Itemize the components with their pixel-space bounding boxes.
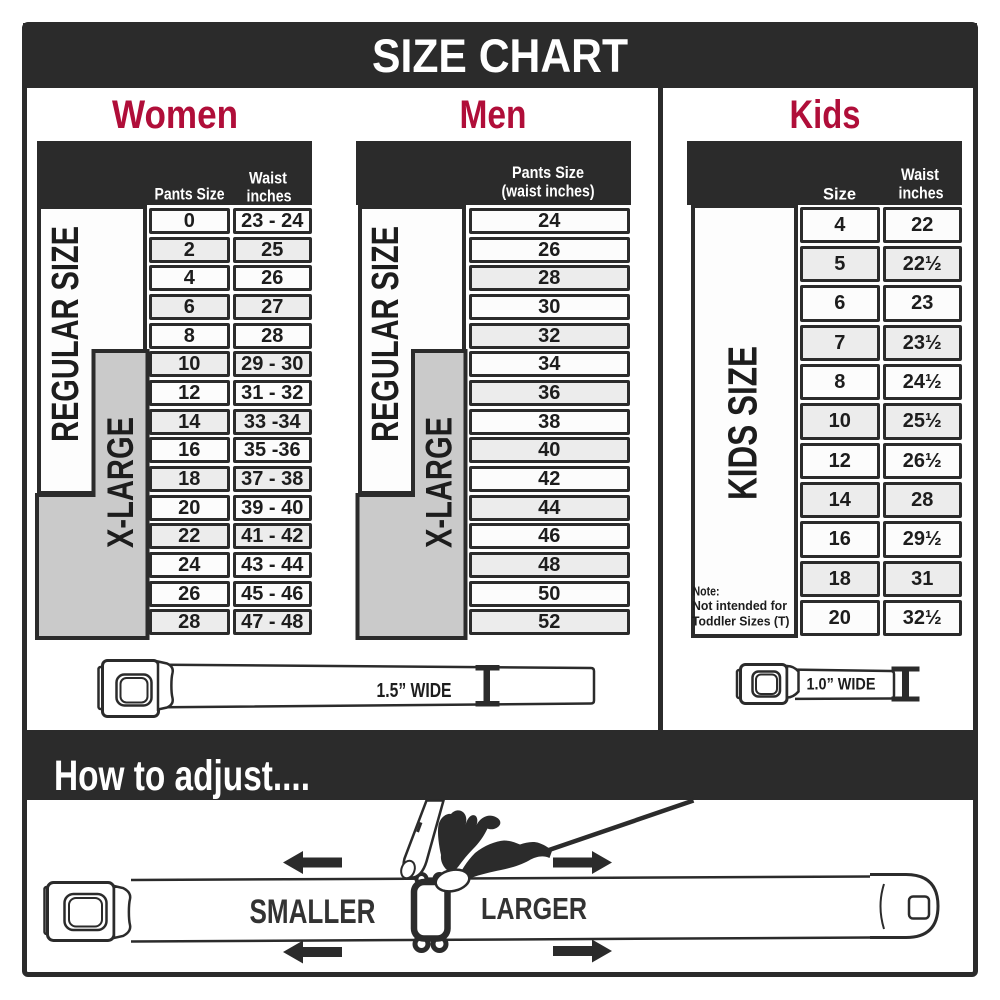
svg-text:Not intended for: Not intended for (692, 598, 787, 613)
svg-text:X-LARGE: X-LARGE (419, 417, 460, 548)
svg-text:Waist: Waist (249, 169, 287, 188)
svg-text:LARGER: LARGER (481, 891, 587, 926)
svg-text:(waist inches): (waist inches) (502, 182, 595, 201)
svg-text:Size: Size (823, 185, 856, 204)
svg-text:REGULAR SIZE: REGULAR SIZE (365, 226, 407, 442)
svg-text:How to adjust....: How to adjust.... (54, 752, 310, 800)
svg-text:SMALLER: SMALLER (250, 893, 376, 931)
svg-text:inches: inches (899, 184, 944, 203)
svg-text:X-LARGE: X-LARGE (100, 417, 141, 548)
svg-text:1.5” WIDE: 1.5” WIDE (377, 680, 452, 702)
svg-text:REGULAR SIZE: REGULAR SIZE (45, 226, 87, 442)
svg-text:Men: Men (460, 93, 527, 137)
svg-text:KIDS SIZE: KIDS SIZE (720, 346, 766, 500)
svg-text:Women: Women (112, 93, 238, 137)
svg-text:1.0” WIDE: 1.0” WIDE (807, 675, 876, 694)
svg-text:Kids: Kids (790, 93, 861, 137)
svg-text:Toddler Sizes (T): Toddler Sizes (T) (692, 614, 790, 629)
svg-text:Note:: Note: (693, 584, 720, 599)
svg-text:Pants Size: Pants Size (512, 163, 584, 182)
svg-text:SIZE CHART: SIZE CHART (372, 29, 628, 82)
svg-text:Pants Size: Pants Size (155, 185, 225, 204)
svg-text:inches: inches (247, 187, 292, 206)
svg-text:Waist: Waist (901, 165, 939, 184)
